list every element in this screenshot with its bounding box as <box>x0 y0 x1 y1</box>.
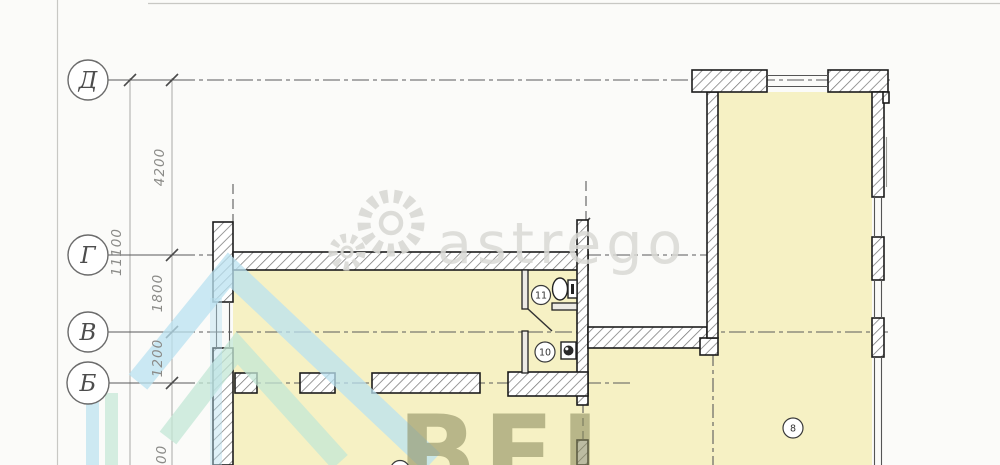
dimension-labels: 4200 1800 1200 11100 00 <box>109 148 170 464</box>
dim-1200: 1200 <box>150 339 166 377</box>
window-right-1 <box>875 197 882 237</box>
axis-bubble-v: В <box>68 312 108 352</box>
watermark-brand-text: astrego <box>437 211 687 277</box>
right-section-room-fill <box>718 92 872 465</box>
toilet-icon <box>553 278 578 300</box>
wall-stub-3 <box>372 373 480 393</box>
dim-11100: 11100 <box>109 228 125 276</box>
axis-bubble-d: Д <box>68 60 108 100</box>
dim-4200: 4200 <box>152 148 168 186</box>
axis-label-b: Б <box>79 371 97 397</box>
watermark-bel-text: BEL <box>398 394 634 465</box>
wall-top-right-seg <box>828 70 888 92</box>
room-number-8: 8 <box>790 424 796 435</box>
room-number-11: 11 <box>535 291 547 302</box>
axis-label-v: В <box>79 320 97 346</box>
floor-plan-drawing: astrego BEL Д Г В Б 4200 1800 1200 11100… <box>0 0 1000 465</box>
axis-label-g: Г <box>79 243 96 269</box>
partition-bath-mid <box>552 303 577 310</box>
wall-right-pier-2 <box>872 237 884 280</box>
axis-bubble-b: Б <box>67 362 109 404</box>
window-right-3 <box>875 357 882 465</box>
wall-corridor-notch <box>700 338 718 355</box>
room-badge-8: 8 <box>783 418 803 438</box>
floor-plan-viewport: astrego BEL Д Г В Б 4200 1800 1200 11100… <box>0 0 1000 465</box>
partition-bath-left-b <box>522 331 528 373</box>
wall-right-pier-3 <box>872 318 884 357</box>
wall-rightroom-left <box>707 92 718 338</box>
dim-bottom-partial: 00 <box>154 445 170 464</box>
window-right-2 <box>875 280 882 318</box>
wall-right-pier-1 <box>872 92 884 197</box>
dimension-lines <box>130 78 172 465</box>
wall-top-left-seg <box>692 70 767 92</box>
axis-bubble-g: Г <box>68 235 108 275</box>
wall-bath-bottom <box>508 372 588 396</box>
wall-right-step <box>883 92 889 103</box>
wall-corridor <box>588 327 707 348</box>
room-badge-11: 11 <box>532 286 551 305</box>
axis-bubbles: Д Г В Б <box>67 60 109 404</box>
dim-1800: 1800 <box>150 274 166 312</box>
room-number-10: 10 <box>539 348 551 359</box>
window-top-wall <box>767 76 828 87</box>
room-badge-10: 10 <box>535 342 555 362</box>
axis-label-d: Д <box>78 68 99 94</box>
sink-icon <box>561 342 576 359</box>
